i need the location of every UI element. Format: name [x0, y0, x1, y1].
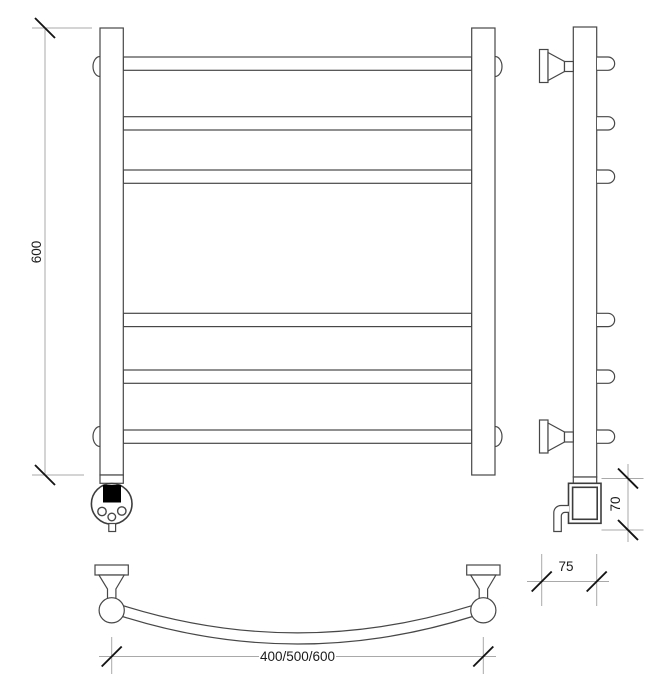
mount-plate	[95, 565, 128, 575]
curved-bar-back-edge	[123, 617, 473, 645]
bar-end-stub	[597, 313, 615, 326]
element-button-left	[98, 507, 106, 515]
element-button-middle	[108, 513, 116, 521]
left-rail	[100, 28, 123, 475]
towel-rail-technical-drawing: 600 70	[0, 0, 665, 700]
element-button-right	[118, 507, 126, 515]
mount-plate	[467, 565, 500, 575]
weld-bulge-bottom-right	[495, 427, 502, 447]
wall-bracket-bottom	[540, 420, 574, 453]
width-dimension-label: 400/500/600	[260, 649, 335, 664]
towel-bar	[123, 370, 471, 383]
element-collar	[100, 475, 123, 483]
bar-end-stub	[597, 117, 615, 130]
right-rail	[472, 28, 495, 475]
bar-end-stub	[597, 170, 615, 183]
front-bars	[123, 57, 471, 443]
height-dimension-label: 600	[29, 241, 44, 264]
element-height-label: 70	[608, 496, 623, 511]
housing-neck	[573, 477, 596, 483]
top-down-view	[95, 565, 500, 644]
side-view	[540, 27, 615, 532]
front-view	[91, 28, 502, 532]
weld-bulge-top-right	[495, 57, 502, 77]
towel-bar	[123, 117, 471, 130]
dimension-height: 600	[29, 18, 92, 485]
mount-cone	[99, 575, 124, 599]
towel-bar	[123, 313, 471, 326]
mount-ball	[99, 598, 124, 623]
side-stubs	[597, 57, 615, 443]
weld-bulge-bottom-left	[93, 427, 100, 447]
mount-right	[467, 565, 500, 623]
dimension-wall-depth: 75	[527, 554, 609, 606]
mount-cone	[471, 575, 496, 599]
mount-ball	[471, 598, 496, 623]
dimension-element-height: 70	[602, 464, 644, 542]
drawing-canvas: 600 70	[0, 0, 665, 700]
bracket-plate	[540, 420, 549, 453]
bracket-cone	[548, 423, 565, 451]
towel-bar	[123, 430, 471, 443]
wall-depth-label: 75	[558, 559, 573, 574]
curved-bar-front-edge	[124, 606, 472, 633]
element-housing-side	[554, 477, 601, 532]
dimension-width: 400/500/600	[99, 637, 496, 674]
side-rail	[573, 27, 596, 477]
towel-bar	[123, 170, 471, 183]
bar-end-stub	[597, 370, 615, 383]
element-stub	[109, 524, 116, 532]
bar-end-stub	[597, 57, 615, 70]
heating-element	[91, 475, 132, 532]
power-cable	[554, 506, 569, 532]
bar-end-stub	[597, 430, 615, 443]
wall-bracket-top	[540, 50, 574, 83]
bracket-plate	[540, 50, 549, 83]
mount-left	[95, 565, 128, 623]
element-display	[104, 486, 121, 503]
housing-inner	[573, 487, 598, 519]
weld-bulge-top-left	[93, 57, 100, 77]
towel-bar	[123, 57, 471, 70]
bracket-stem	[565, 432, 574, 442]
bracket-stem	[565, 62, 574, 72]
bracket-cone	[548, 53, 565, 81]
